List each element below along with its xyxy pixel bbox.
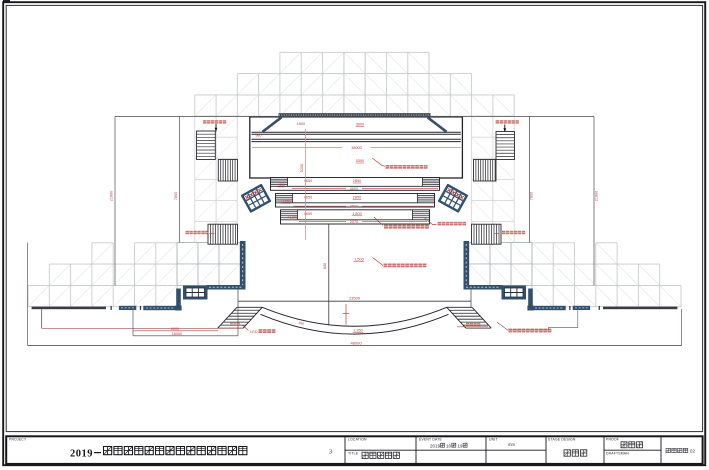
svg-text:980: 980	[256, 134, 262, 138]
svg-text:EVENT DATE: EVENT DATE	[419, 438, 443, 442]
svg-text:+600: +600	[278, 183, 285, 187]
svg-text:4600: 4600	[350, 204, 358, 208]
svg-text:LOCATION: LOCATION	[348, 438, 367, 442]
svg-text:LED: LED	[250, 329, 258, 334]
svg-text:1,350: 1,350	[353, 328, 363, 332]
svg-text:4650: 4650	[304, 196, 312, 200]
svg-text:2019: 2019	[430, 443, 441, 448]
svg-text:5350: 5350	[356, 159, 364, 163]
svg-text:7800: 7800	[174, 192, 178, 200]
svg-text:2070: 2070	[350, 220, 358, 224]
svg-text:21600: 21600	[595, 191, 599, 202]
svg-text:5200: 5200	[300, 164, 304, 172]
svg-text:DRAFTSMAN: DRAFTSMAN	[606, 451, 629, 455]
svg-text:4600: 4600	[350, 187, 358, 191]
svg-text:3: 3	[329, 450, 332, 456]
svg-text:23500: 23500	[349, 296, 361, 301]
svg-text:2850: 2850	[353, 196, 361, 200]
svg-text:2019: 2019	[70, 449, 93, 460]
svg-text:1,500: 1,500	[354, 258, 364, 262]
svg-text:2850: 2850	[353, 179, 361, 183]
svg-text:4650: 4650	[304, 179, 312, 183]
svg-text:800: 800	[323, 263, 327, 269]
svg-text:+1,200: +1,200	[281, 199, 291, 203]
svg-text:48000: 48000	[350, 340, 362, 345]
svg-text:PROOF: PROOF	[606, 438, 619, 442]
svg-text:PROJECT: PROJECT	[9, 438, 26, 442]
svg-text:mm: mm	[508, 442, 515, 447]
svg-text:02: 02	[690, 449, 695, 454]
svg-text:38000: 38000	[351, 146, 362, 150]
svg-text:19: 19	[457, 443, 463, 448]
svg-text:6000: 6000	[171, 327, 179, 331]
svg-text:+1,800: +1,800	[288, 216, 298, 220]
svg-text:4650: 4650	[304, 212, 312, 216]
svg-text:16000: 16000	[172, 332, 183, 336]
svg-text:10: 10	[446, 443, 452, 448]
svg-text:1500: 1500	[297, 122, 305, 126]
svg-text:UNIT: UNIT	[489, 438, 498, 442]
svg-text:STAGE DESIGN: STAGE DESIGN	[548, 438, 576, 442]
svg-text:3600: 3600	[356, 122, 364, 126]
svg-text:1,800: 1,800	[352, 212, 362, 216]
svg-text:TITLE: TITLE	[348, 451, 359, 455]
svg-text:21600: 21600	[110, 191, 114, 202]
svg-text:7800: 7800	[530, 192, 534, 200]
